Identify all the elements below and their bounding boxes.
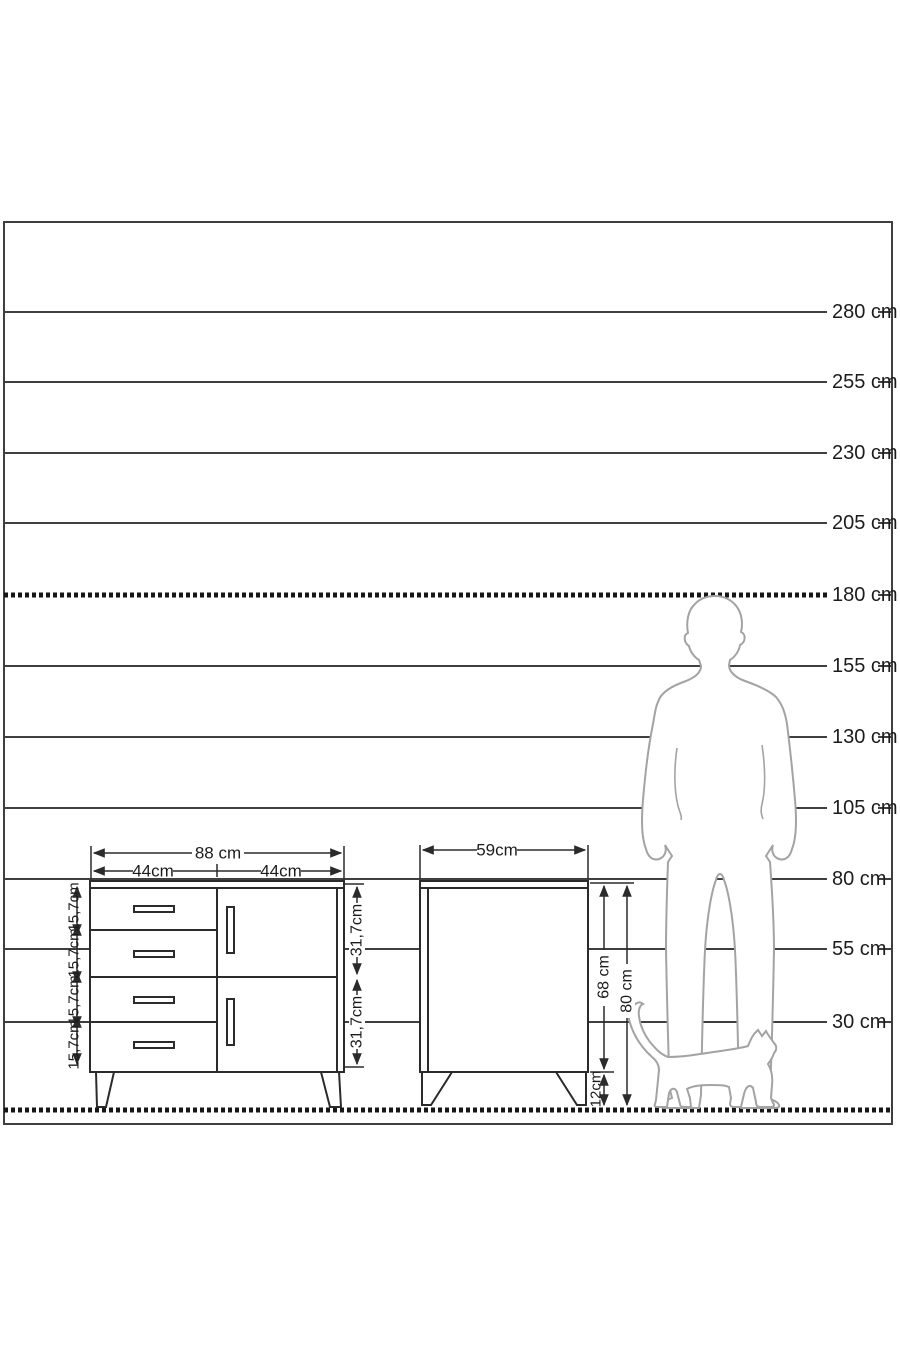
nightstand-body-height-label: 68 cm [596,955,613,999]
nightstand-leg-left [422,1072,452,1105]
door-handle-top [227,907,234,953]
door-height-label-bottom: 31,7cm [349,996,366,1048]
diagram-svg: 280 cm 255 cm 230 cm 205 cm 180 cm 155 c… [0,0,900,1350]
drawer-height-label-4: 15,7cm [66,1020,83,1069]
scale-label-180cm: 180 cm [832,584,898,606]
scale-label-230cm: 230 cm [832,442,898,464]
drawer-handle-3 [134,997,174,1003]
drawer-handle-1 [134,906,174,912]
sideboard-leg-right [321,1072,341,1107]
scale-label-80cm: 80 cm [832,868,886,890]
drawer-handle-4 [134,1042,174,1048]
sideboard-leg-left [96,1072,114,1107]
scale-label-255cm: 255 cm [832,371,898,393]
scale-label-105cm: 105 cm [832,797,898,819]
furniture-dimension-diagram: 280 cm 255 cm 230 cm 205 cm 180 cm 155 c… [0,0,900,1350]
sideboard-half-width-label-right: 44cm [260,862,302,881]
nightstand-leg-height-label: 12cm [588,1071,605,1108]
drawer-handle-2 [134,951,174,957]
scale-label-205cm: 205 cm [832,512,898,534]
door-height-label-top: 31,7cm [349,904,366,956]
sideboard-width-label: 88 cm [195,844,241,863]
nightstand [420,881,588,1105]
sideboard [90,881,344,1107]
drawer-height-label-2: 15,7cm [66,928,83,977]
sideboard-half-width-label-left: 44cm [132,862,174,881]
man-outline [642,596,796,1108]
scale-label-280cm: 280 cm [832,301,898,323]
nightstand-width-label: 59cm [476,841,518,860]
scale-label-155cm: 155 cm [832,655,898,677]
door-handle-bottom [227,999,234,1045]
scale-label-30cm: 30 cm [832,1011,886,1033]
scale-label-55cm: 55 cm [832,938,886,960]
nightstand-leg-right [556,1072,586,1105]
drawer-height-label-3: 15,7cm [66,975,83,1024]
scale-label-130cm: 130 cm [832,726,898,748]
nightstand-body [420,881,588,1072]
nightstand-total-height-label: 80 cm [619,969,636,1013]
man-silhouette [642,596,796,1108]
drawer-height-label-1: 15,7cm [66,882,83,931]
